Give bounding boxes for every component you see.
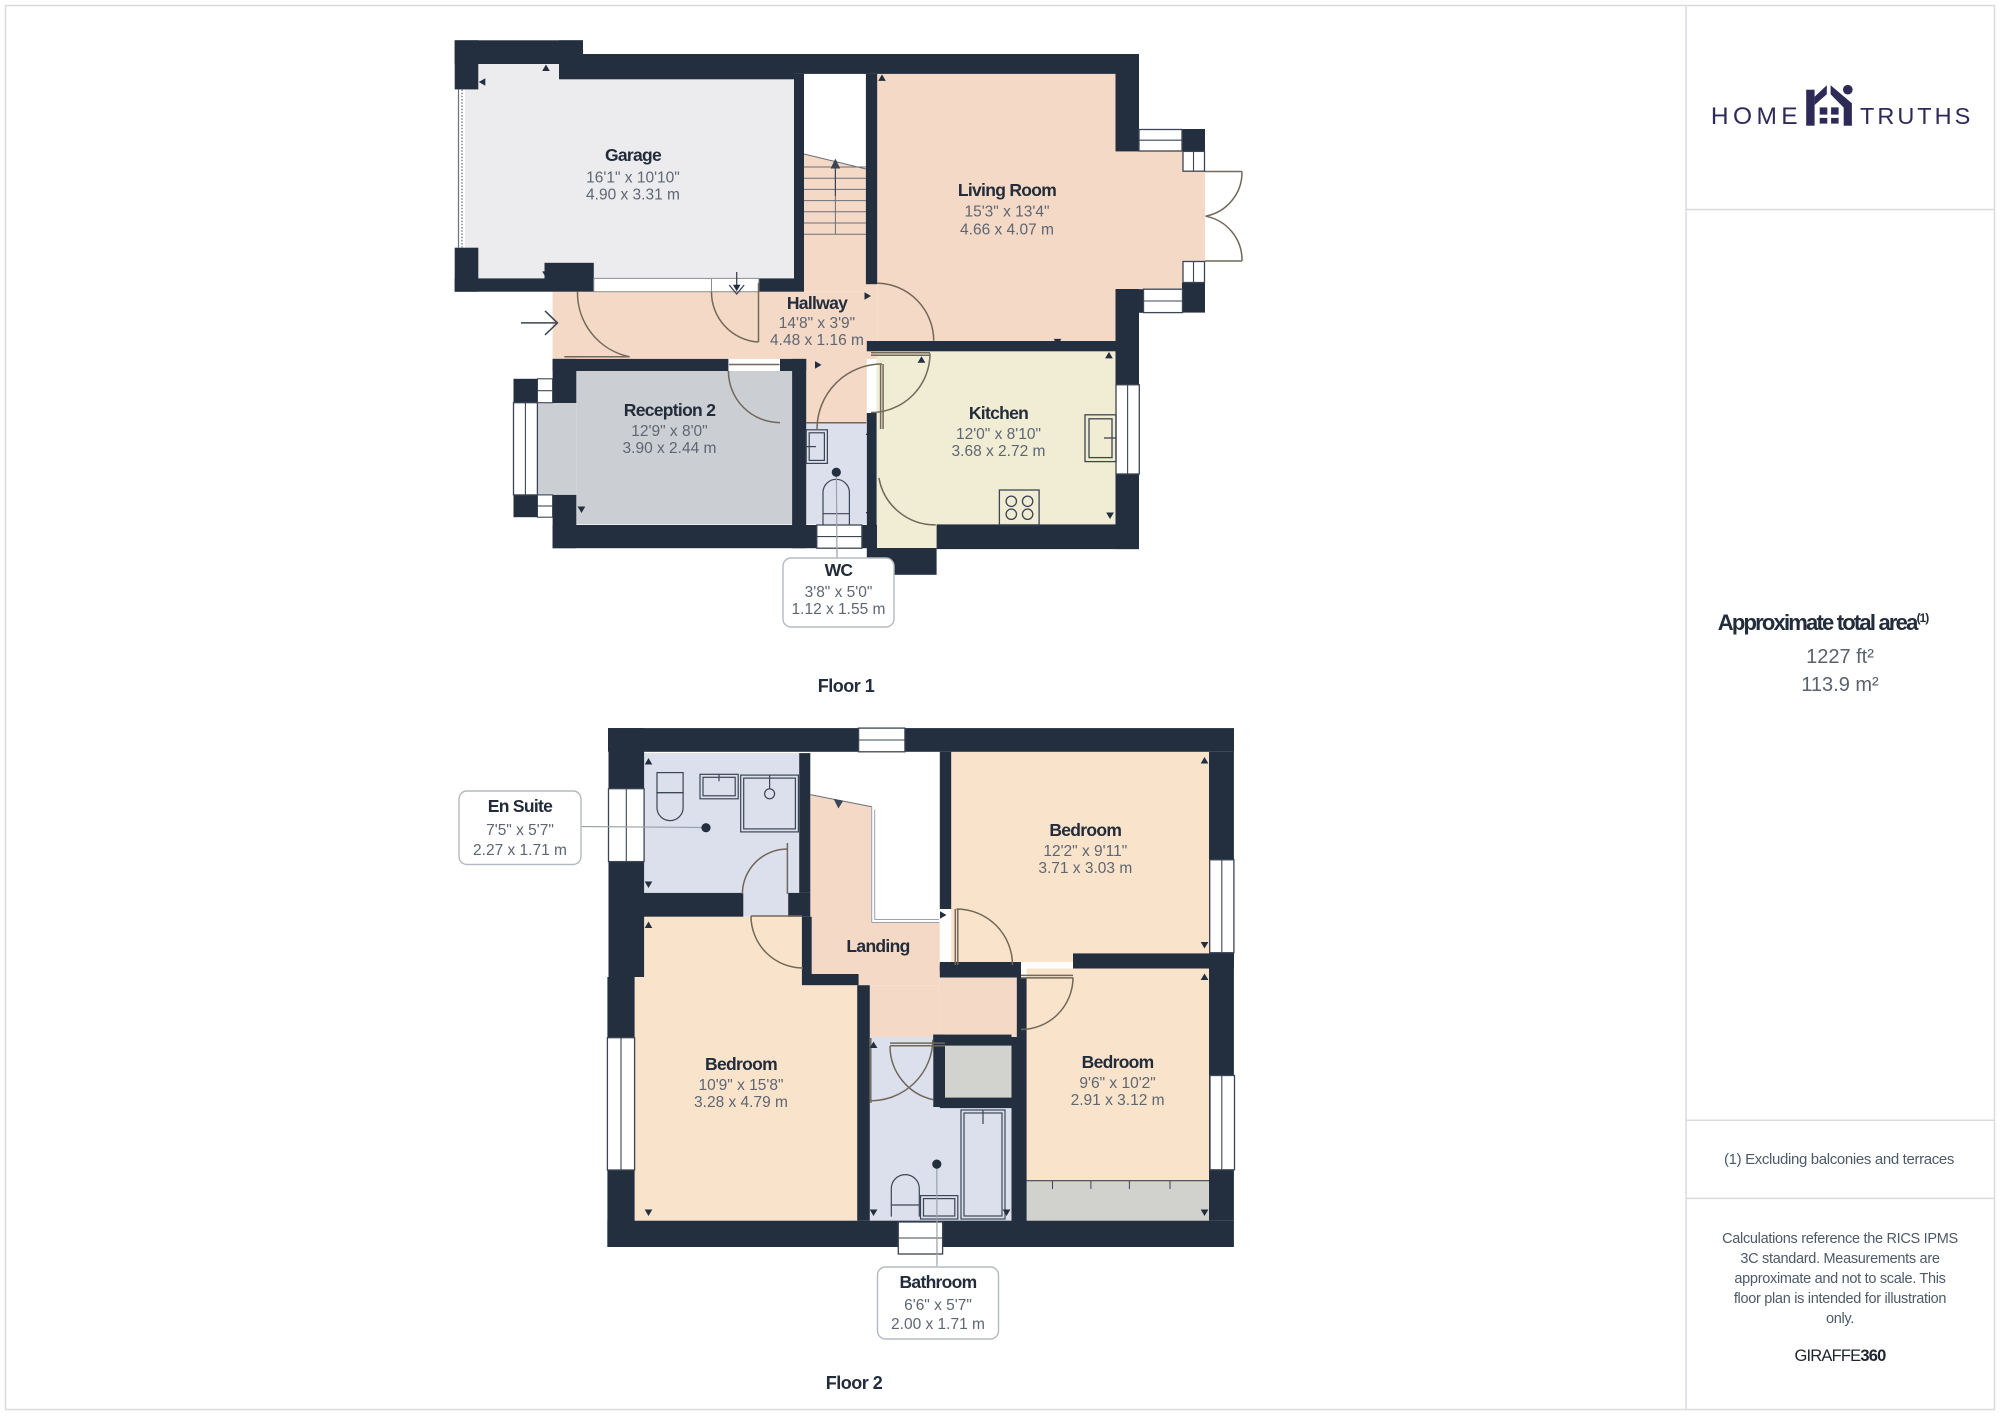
svg-text:Floor 2: Floor 2 bbox=[826, 1373, 883, 1393]
svg-text:10'9" x 15'8": 10'9" x 15'8" bbox=[698, 1077, 783, 1094]
svg-text:14'8" x 3'9": 14'8" x 3'9" bbox=[779, 315, 855, 332]
svg-text:Floor 1: Floor 1 bbox=[818, 676, 875, 696]
svg-text:Garage: Garage bbox=[605, 145, 662, 165]
svg-text:3C standard. Measurements are: 3C standard. Measurements are bbox=[1740, 1251, 1939, 1267]
svg-text:GIRAFFE360: GIRAFFE360 bbox=[1794, 1347, 1886, 1365]
svg-text:6'6" x 5'7": 6'6" x 5'7" bbox=[904, 1297, 972, 1314]
svg-text:(1) Excluding balconies and te: (1) Excluding balconies and terraces bbox=[1724, 1151, 1954, 1168]
svg-text:Bedroom: Bedroom bbox=[1082, 1052, 1154, 1072]
svg-text:only.: only. bbox=[1826, 1311, 1854, 1327]
svg-text:En Suite: En Suite bbox=[488, 796, 553, 816]
svg-text:2.91 x 3.12 m: 2.91 x 3.12 m bbox=[1071, 1092, 1165, 1109]
svg-text:12'0" x 8'10": 12'0" x 8'10" bbox=[956, 426, 1041, 443]
svg-text:3.90 x 2.44 m: 3.90 x 2.44 m bbox=[623, 440, 717, 457]
svg-text:Hallway: Hallway bbox=[787, 293, 848, 313]
svg-text:1.12 x 1.55 m: 1.12 x 1.55 m bbox=[792, 601, 886, 618]
svg-text:Bedroom: Bedroom bbox=[1049, 820, 1121, 840]
svg-text:Approximate total area(1): Approximate total area(1) bbox=[1718, 610, 1929, 635]
svg-text:2.27 x 1.71 m: 2.27 x 1.71 m bbox=[473, 842, 567, 859]
svg-text:3.68 x 2.72 m: 3.68 x 2.72 m bbox=[952, 443, 1046, 460]
svg-text:7'5" x 5'7": 7'5" x 5'7" bbox=[486, 822, 554, 839]
svg-text:3.28 x 4.79 m: 3.28 x 4.79 m bbox=[694, 1094, 788, 1111]
svg-text:Bedroom: Bedroom bbox=[705, 1054, 777, 1074]
svg-text:4.66 x 4.07 m: 4.66 x 4.07 m bbox=[960, 222, 1054, 239]
svg-text:4.90 x 3.31 m: 4.90 x 3.31 m bbox=[586, 187, 680, 204]
svg-text:HOME: HOME bbox=[1711, 103, 1802, 130]
svg-text:15'3" x 13'4": 15'3" x 13'4" bbox=[964, 204, 1049, 221]
svg-text:Kitchen: Kitchen bbox=[969, 403, 1028, 423]
svg-text:12'2" x 9'11": 12'2" x 9'11" bbox=[1043, 843, 1127, 860]
svg-text:4.48 x 1.16 m: 4.48 x 1.16 m bbox=[770, 332, 864, 349]
svg-text:3.71 x 3.03 m: 3.71 x 3.03 m bbox=[1038, 860, 1132, 877]
svg-text:approximate and not to scale.: approximate and not to scale. This bbox=[1734, 1271, 1945, 1287]
svg-text:TRUTHS: TRUTHS bbox=[1860, 103, 1973, 129]
svg-text:2.00 x 1.71 m: 2.00 x 1.71 m bbox=[891, 1316, 985, 1333]
svg-text:Landing: Landing bbox=[846, 936, 909, 956]
svg-text:Living Room: Living Room bbox=[958, 180, 1056, 200]
svg-text:Calculations reference the RIC: Calculations reference the RICS IPMS bbox=[1722, 1231, 1958, 1247]
svg-text:WC: WC bbox=[825, 560, 854, 580]
svg-text:floor plan is intended for ill: floor plan is intended for illustration bbox=[1734, 1291, 1947, 1307]
svg-text:12'9" x 8'0": 12'9" x 8'0" bbox=[631, 423, 707, 440]
svg-text:113.9 m²: 113.9 m² bbox=[1801, 674, 1879, 696]
svg-text:9'6" x 10'2": 9'6" x 10'2" bbox=[1079, 1075, 1155, 1092]
svg-text:1227 ft²: 1227 ft² bbox=[1806, 646, 1874, 668]
svg-text:16'1" x 10'10": 16'1" x 10'10" bbox=[586, 170, 680, 187]
svg-text:Reception 2: Reception 2 bbox=[624, 400, 716, 420]
svg-text:3'8" x 5'0": 3'8" x 5'0" bbox=[805, 584, 873, 601]
svg-text:Bathroom: Bathroom bbox=[899, 1272, 976, 1292]
